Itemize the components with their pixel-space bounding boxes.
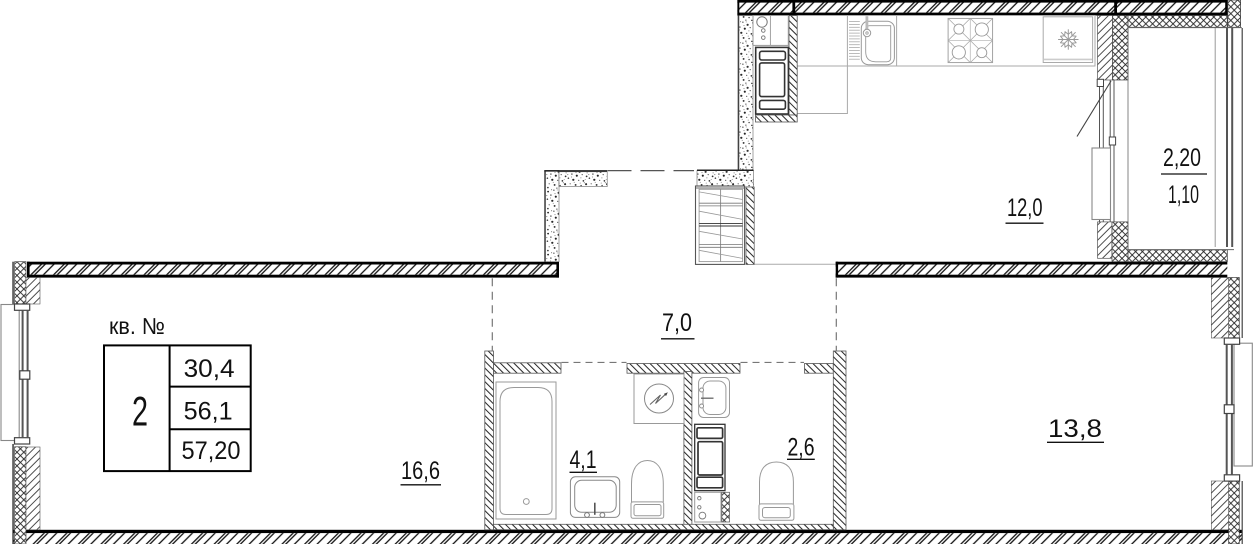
svg-text:2: 2 — [132, 388, 148, 435]
svg-text:57,20: 57,20 — [182, 437, 241, 465]
svg-text:2,6: 2,6 — [788, 434, 815, 462]
svg-text:1,10: 1,10 — [1168, 181, 1199, 209]
svg-text:7,0: 7,0 — [662, 309, 692, 337]
svg-text:12,0: 12,0 — [1007, 194, 1043, 222]
svg-text:16,6: 16,6 — [401, 457, 440, 485]
svg-text:56,1: 56,1 — [184, 398, 233, 426]
svg-text:2,20: 2,20 — [1163, 144, 1201, 172]
svg-text:кв. №: кв. № — [109, 313, 165, 339]
svg-text:4,1: 4,1 — [570, 446, 597, 474]
svg-text:30,4: 30,4 — [184, 355, 235, 383]
svg-text:13,8: 13,8 — [1048, 415, 1102, 443]
